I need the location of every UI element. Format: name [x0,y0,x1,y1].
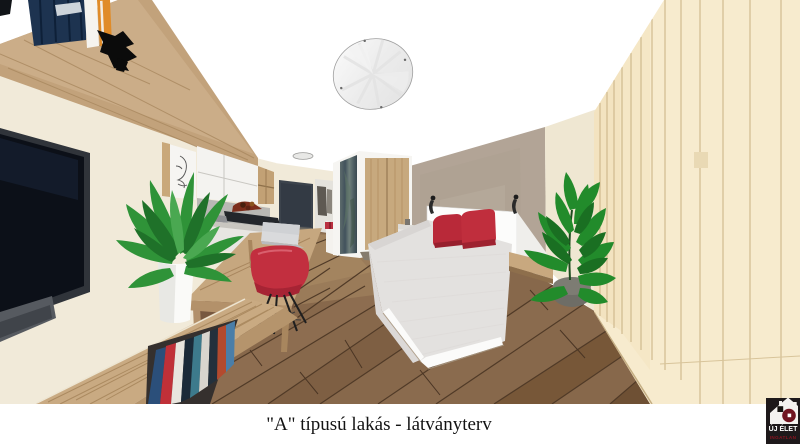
svg-text:"A" típusú lakás - látványter: "A" típusú lakás - látványterv [266,414,492,435]
svg-text:INGATLAN: INGATLAN [770,435,797,440]
svg-text:ÚJ ÉLET: ÚJ ÉLET [769,424,799,433]
